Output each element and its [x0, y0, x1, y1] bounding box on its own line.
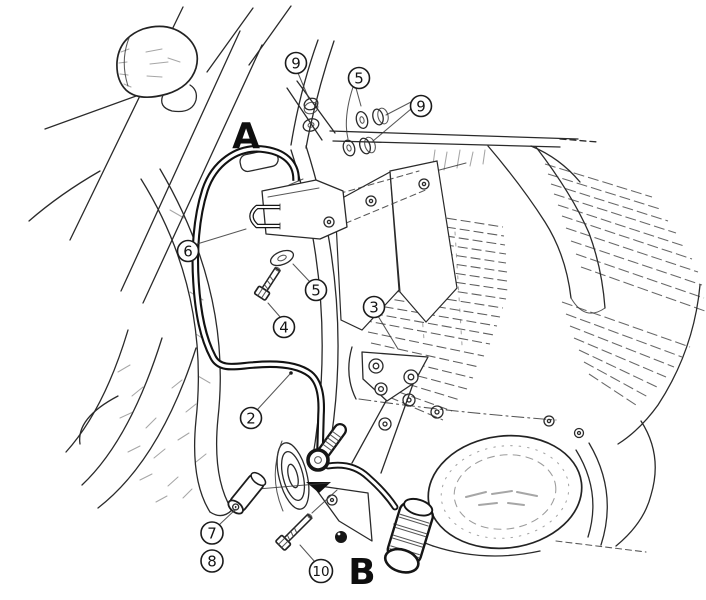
leader-line-5b: [293, 264, 310, 282]
callout-2: 2: [241, 408, 262, 429]
callout-3: 3: [364, 297, 385, 318]
upper-mount-plate: [262, 180, 347, 239]
leader-line-10: [300, 545, 315, 562]
bracket-strap: [352, 401, 386, 463]
installation-diagram: 9 5 9 6 5 4 3 2: [0, 0, 706, 600]
leader-line-9b: [386, 102, 411, 115]
spacer-sleeve: [226, 470, 268, 516]
case-bolt: [431, 406, 443, 418]
fender-tip: [210, 510, 232, 516]
leader-line-3: [378, 316, 398, 349]
diagram-page: 9 5 9 6 5 4 3 2: [0, 0, 706, 600]
vee-channel-bottom: [571, 298, 605, 313]
engine: [320, 146, 705, 557]
callout-label: 4: [279, 319, 289, 337]
head-fins-short: [432, 150, 485, 172]
mount-bolt: [254, 265, 284, 301]
leader-line-7: [219, 509, 236, 525]
frame-neck: [287, 88, 322, 140]
pulley-arc: [286, 463, 301, 488]
pulley-arc: [277, 449, 309, 502]
washer-hole: [277, 254, 287, 262]
callout-9a: 9: [286, 53, 307, 74]
callout-label: 6: [183, 243, 193, 261]
callout-label: 2: [246, 410, 256, 428]
washer: [268, 247, 295, 268]
callout-label: 10: [312, 564, 329, 580]
rear-cylinder-fins: [545, 164, 705, 311]
callout-5a: 5: [349, 68, 370, 89]
leader-line-6: [197, 229, 246, 244]
ground-dash-line: [556, 541, 646, 552]
lever-pivot: [308, 450, 328, 470]
bracket-hole: [369, 359, 383, 373]
callout-4: 4: [274, 317, 295, 338]
callout-label: 7: [207, 525, 217, 543]
leader-line-9a: [298, 73, 309, 99]
callout-label: 9: [291, 55, 301, 73]
case-bolt-center: [547, 419, 550, 422]
washer-hole: [359, 116, 365, 124]
case-bolt-center: [435, 410, 439, 414]
wheel-arc: [29, 171, 100, 221]
callout-8: 8: [201, 550, 223, 572]
callout-5b: 5: [306, 280, 327, 301]
case-bolt: [575, 429, 584, 438]
wheel-arc: [45, 91, 150, 129]
callout-label: 9: [416, 98, 426, 116]
long-bolt: [275, 511, 315, 551]
leader-line-4: [268, 303, 281, 318]
front-fender: [141, 169, 232, 516]
callout-label: 8: [207, 553, 217, 571]
callout-label: 5: [354, 70, 364, 88]
washer-hole: [346, 144, 352, 151]
crankcase-top-edge: [359, 399, 556, 420]
callout-label: 5: [311, 282, 321, 300]
callout-7: 7: [201, 522, 223, 544]
bracket-hole: [404, 370, 418, 384]
callout-6: 6: [178, 241, 199, 262]
leader-line-5a: [356, 88, 361, 106]
bracket-pivot-bolt: [335, 531, 347, 543]
callout-9b: 9: [411, 96, 432, 117]
callout-label: 3: [369, 299, 379, 317]
bracket-pivot-bolt-glint: [338, 533, 341, 536]
tire-arc: [66, 330, 128, 452]
washer: [355, 110, 370, 129]
section-label-a: A: [232, 116, 260, 157]
crankcase-right-edge: [616, 421, 655, 546]
rear-cylinder-fins-lower: [562, 302, 690, 407]
rear-cylinder-right-edge: [618, 285, 700, 444]
case-bolt-center: [383, 422, 387, 426]
fork-bracket-line: [207, 8, 253, 72]
bracket-hole: [375, 383, 387, 395]
crankcase-left-edge: [349, 347, 356, 399]
footpeg-rubber: [382, 495, 436, 576]
front-wheel: [29, 91, 206, 508]
fork-bracket-line: [249, 6, 291, 65]
frame-top-tube-break: [560, 139, 598, 142]
frame-downtube-upper: [306, 41, 334, 148]
cylinder-vee-channel: [488, 146, 571, 298]
frame-top-tube: [333, 141, 560, 147]
section-label-b: B: [348, 552, 375, 593]
case-bolt-center: [578, 432, 581, 435]
leader-line-2: [257, 374, 290, 410]
callout-10: 10: [310, 560, 333, 583]
case-bolt: [544, 416, 554, 426]
tire-tread-marks: [118, 365, 206, 502]
pulley-arc: [271, 440, 315, 513]
case-bolt: [379, 418, 391, 430]
